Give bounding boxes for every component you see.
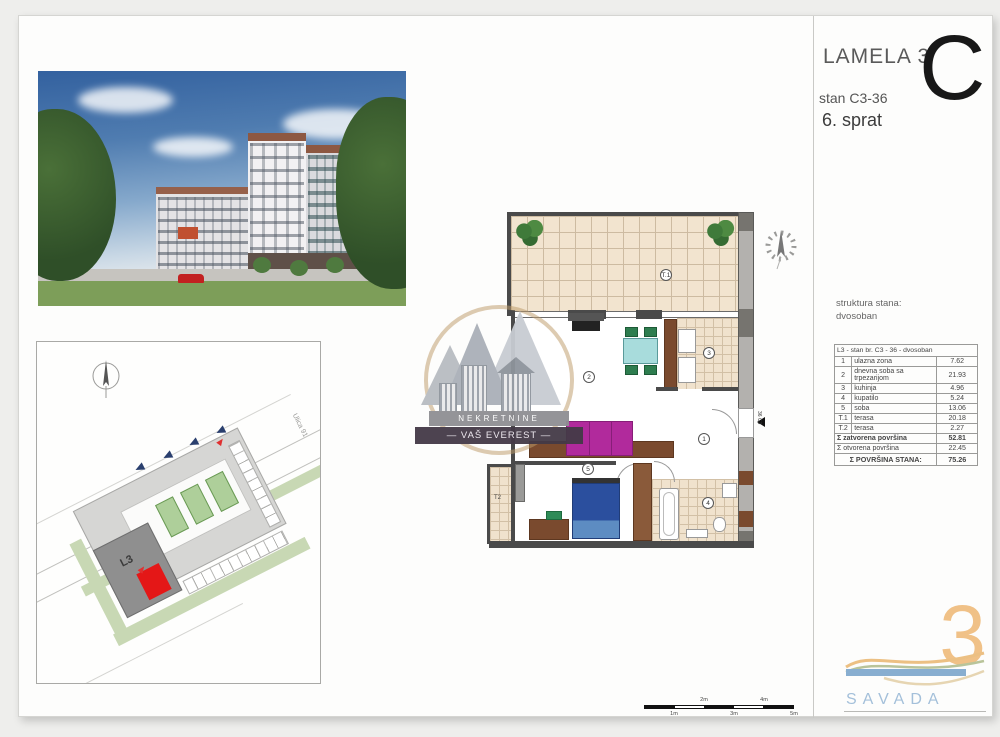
site-plan: L3 Ulica 91 [36, 341, 321, 684]
table-title: L3 - stan br. C3 - 36 - dvosoban [835, 345, 978, 357]
scale-bar: 2m 4m 1m 3m 5m [644, 697, 796, 719]
terrace-2-floor [490, 467, 511, 541]
table-row: 4kupatilo5.24 [835, 394, 978, 404]
red-car [178, 274, 204, 283]
agency-watermark: NEKRETNINE — VAŠ EVEREST — [409, 299, 589, 471]
cloud [153, 137, 233, 157]
scale-label: 5m [784, 711, 804, 717]
structure-type: dvosoban [836, 311, 877, 322]
street-label: Ulica 91 [291, 413, 309, 439]
room-label-terrace2: T2 [494, 495, 501, 501]
washing-machine [722, 483, 737, 498]
shrub [290, 260, 308, 276]
wall [702, 387, 738, 391]
dining-chair [625, 365, 638, 375]
room-label-hall: 1 [698, 433, 710, 445]
toilet [713, 517, 726, 532]
brand-waves-icon [844, 645, 986, 691]
room-label-kitchen: 3 [703, 347, 715, 359]
structure-note: struktura stana: dvosoban [836, 298, 901, 324]
floor-number: 6. sprat [822, 110, 882, 131]
structural-wall [738, 212, 754, 548]
scale-label: 4m [754, 697, 774, 703]
table-row: T.1terasa20.18 [835, 414, 978, 424]
building-render-photo [38, 71, 406, 306]
table-grand-total-row: Σ POVRŠINA STANA:75.26 [835, 454, 978, 466]
savada-logo: 3 SAVADA [844, 599, 992, 714]
watermark-line1: NEKRETNINE [429, 411, 569, 426]
wall-segment [739, 309, 753, 337]
kitchen-appliance [678, 329, 696, 353]
kitchen-counter [664, 319, 677, 389]
dining-chair [644, 327, 657, 337]
scale-label: 3m [724, 711, 744, 717]
entry-door-opening [738, 408, 754, 438]
scale-label: 1m [664, 711, 684, 717]
table-row: 5soba13.06 [835, 404, 978, 414]
shrub [326, 257, 344, 273]
building-complex-footprint: L3 [36, 392, 321, 677]
brand-underline [844, 711, 986, 712]
bathtub [659, 488, 679, 540]
cloud [78, 87, 173, 113]
table-row: 3kuhinja4.96 [835, 384, 978, 394]
table-row: 1ulazna zona7.62 [835, 357, 978, 367]
entry-marker-label: 36 C3 [756, 411, 762, 424]
scale-label: 2m [694, 697, 714, 703]
plan-sheet: L3 Ulica 91 T.1 [18, 15, 993, 717]
scale-bar-segments [644, 705, 794, 709]
table-row: T.2terasa2.27 [835, 424, 978, 434]
desk [529, 519, 569, 540]
dining-table [623, 338, 658, 364]
facade-accent [178, 227, 198, 239]
wall [636, 310, 662, 319]
table-row: 2dnevna soba sa trpezarijom21.93 [835, 367, 978, 384]
bathroom-sink [686, 529, 708, 538]
dining-chair [644, 365, 657, 375]
shrub [253, 257, 271, 273]
wall-segment [739, 511, 753, 527]
table-total-row: Σ zatvorena površina52.81 [835, 434, 978, 444]
wall [489, 541, 754, 548]
plant-icon [515, 220, 545, 248]
wall [656, 387, 678, 391]
plant-icon [706, 220, 736, 248]
shaft-wall [633, 463, 652, 541]
bed [572, 483, 620, 539]
section-letter: C [919, 22, 985, 114]
dining-chair [625, 327, 638, 337]
kitchen-stove [678, 357, 696, 383]
north-arrow-icon [89, 356, 123, 400]
lamela-3-label: L3 [118, 553, 135, 570]
room-label-bath: 4 [702, 497, 714, 509]
roofline [248, 133, 306, 141]
wall-segment [739, 213, 753, 231]
watermark-line2: — VAŠ EVEREST — [415, 427, 583, 444]
table-title-row: L3 - stan br. C3 - 36 - dvosoban [835, 345, 978, 357]
compass-icon [762, 225, 800, 271]
lawn [38, 281, 406, 306]
info-column: LAMELA 3 stan C3-36 6. sprat C struktura… [813, 16, 994, 718]
structure-label: struktura stana: [836, 298, 901, 309]
lamela-title: LAMELA 3 [823, 45, 930, 69]
wall-segment [739, 471, 753, 485]
desk-plant [546, 511, 562, 520]
table-total-row: Σ otvorena površina22.45 [835, 444, 978, 454]
room-label-terrace1: T.1 [660, 269, 672, 281]
area-table: L3 - stan br. C3 - 36 - dvosoban 1ulazna… [834, 344, 978, 466]
unit-number: stan C3-36 [819, 90, 887, 106]
brand-name: SAVADA [846, 691, 945, 709]
